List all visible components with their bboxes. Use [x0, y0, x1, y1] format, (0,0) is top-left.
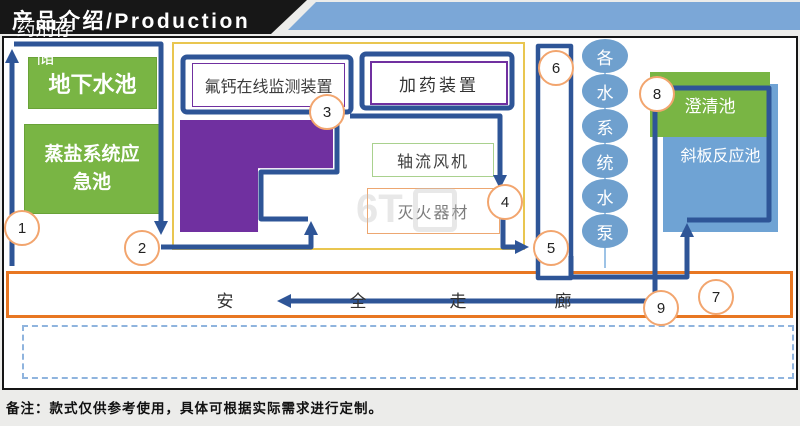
- pump-ellipse-3: 系: [582, 109, 628, 143]
- marker-2: 2: [124, 230, 160, 266]
- marker-8: 8: [639, 76, 675, 112]
- corridor-char-1: 安: [215, 287, 235, 307]
- emergency-pool-box: 蒸盐系统应急池: [24, 124, 160, 214]
- marker-1: 1: [4, 210, 40, 246]
- pump-ellipse-4: 统: [582, 144, 628, 178]
- marker-3: 3: [309, 94, 345, 130]
- pump-ellipse-2: 水: [582, 74, 628, 108]
- marker-6: 6: [538, 50, 574, 86]
- footer-note: 备注：款式仅供参考使用，具体可根据实际需求进行定制。: [6, 397, 383, 417]
- marker-5: 5: [533, 230, 569, 266]
- reserved-area-dashed-box: [22, 325, 794, 379]
- emergency-pool-label: 蒸盐系统应急池: [40, 141, 145, 198]
- pump-ellipse-5: 水: [582, 179, 628, 213]
- dosing-device-box: 加药装置: [370, 61, 508, 105]
- slide: 产品介绍/Production 地下水池 蒸盐系统应急池 药剂存储 氟钙在线监测…: [0, 0, 800, 426]
- incline-reactor-label: 斜板反应池: [663, 142, 778, 166]
- corridor-char-3: 走: [448, 287, 468, 307]
- watermark: 6T: [356, 182, 506, 237]
- axial-fan-box: 轴流风机: [372, 143, 494, 177]
- corridor-char-4: 廊: [553, 287, 573, 307]
- chemical-storage-label: 药剂存储: [12, 16, 78, 71]
- marker-9: 9: [643, 290, 679, 326]
- pump-ellipse-1: 各: [582, 39, 628, 73]
- corridor-char-2: 全: [348, 287, 368, 307]
- marker-7: 7: [698, 279, 734, 315]
- marker-4: 4: [487, 184, 523, 220]
- pump-ellipse-6: 泵: [582, 214, 628, 248]
